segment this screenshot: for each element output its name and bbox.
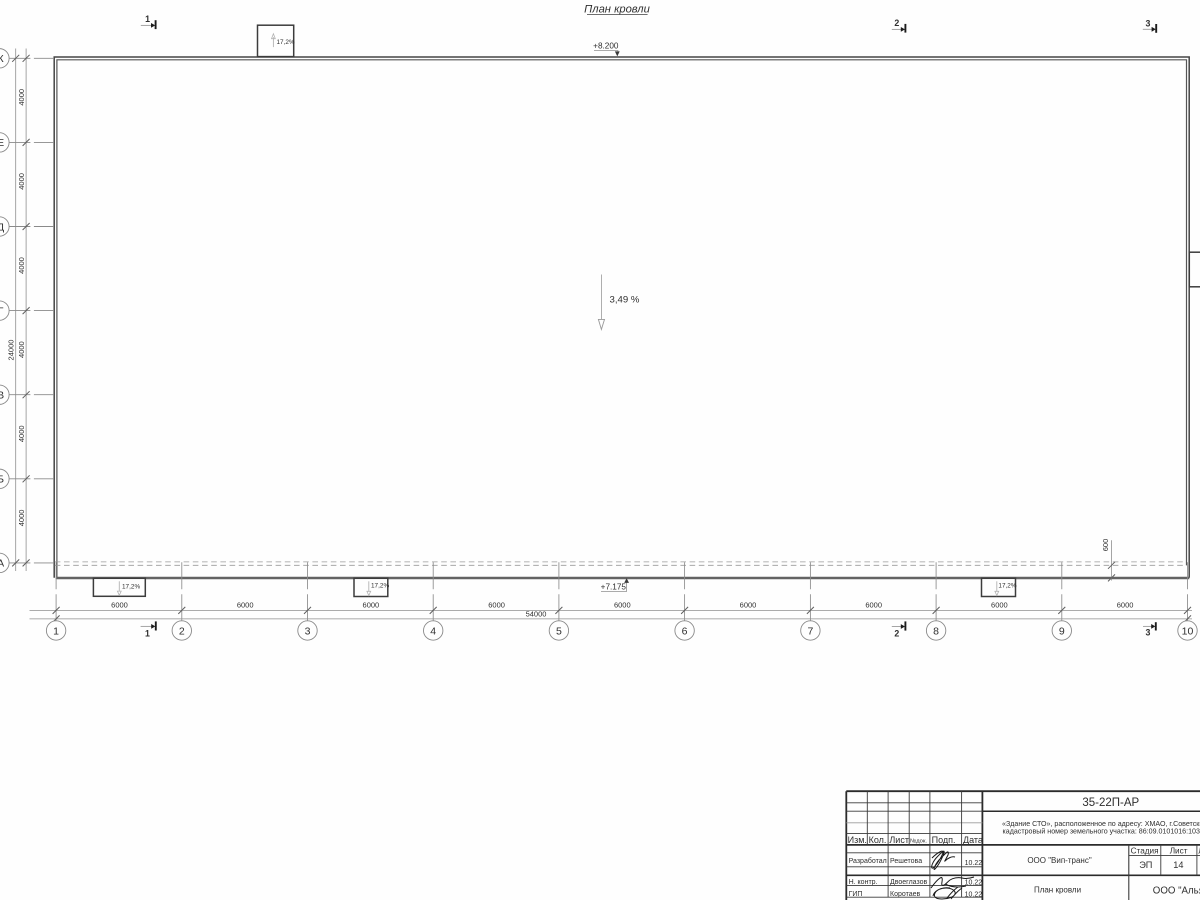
svg-text:4: 4 [430, 625, 436, 637]
svg-text:3,49 %: 3,49 % [610, 295, 640, 306]
svg-text:Решетова: Решетова [890, 858, 922, 865]
svg-text:6000: 6000 [363, 601, 380, 610]
svg-text:10: 10 [1182, 625, 1194, 637]
svg-text:3: 3 [1145, 628, 1150, 638]
svg-text:3: 3 [305, 625, 311, 637]
svg-text:кадастровый номер земельного у: кадастровый номер земельного участка: 86… [1003, 828, 1200, 836]
svg-text:«Здание СТО», расположенное по: «Здание СТО», расположенное по адресу: Х… [1002, 820, 1200, 828]
svg-text:А: А [0, 558, 4, 570]
svg-text:Н. контр.: Н. контр. [849, 879, 878, 886]
svg-text:6000: 6000 [865, 601, 882, 610]
svg-text:6000: 6000 [1117, 601, 1134, 610]
svg-text:Е: Е [0, 137, 4, 149]
svg-text:В: В [0, 390, 4, 402]
svg-text:+8.200: +8.200 [593, 42, 619, 51]
svg-text:14: 14 [1173, 860, 1183, 870]
svg-text:4000: 4000 [17, 173, 26, 190]
svg-text:4000: 4000 [17, 257, 26, 274]
svg-text:1: 1 [145, 628, 150, 638]
svg-text:10.22: 10.22 [965, 880, 983, 887]
svg-text:10.22: 10.22 [965, 891, 983, 898]
svg-text:Двоеглазов: Двоеглазов [890, 879, 927, 886]
svg-text:Дата: Дата [963, 835, 983, 845]
svg-text:17,2%: 17,2% [998, 583, 1016, 590]
svg-text:Изм.: Изм. [848, 835, 867, 845]
svg-text:4000: 4000 [17, 89, 26, 106]
svg-text:4000: 4000 [17, 425, 26, 442]
svg-text:1: 1 [145, 14, 150, 24]
svg-text:7: 7 [807, 625, 813, 637]
svg-text:8: 8 [933, 625, 939, 637]
svg-text:Кол.: Кол. [869, 835, 887, 845]
svg-text:2: 2 [179, 625, 185, 637]
svg-text:Разработал: Разработал [849, 857, 887, 865]
svg-text:17,2%: 17,2% [122, 584, 140, 591]
svg-text:35-22П-АР: 35-22П-АР [1082, 797, 1139, 809]
svg-text:План кровли: План кровли [1034, 885, 1081, 894]
svg-text:6000: 6000 [991, 601, 1008, 610]
svg-text:17,2%: 17,2% [371, 583, 389, 590]
svg-text:17,2%: 17,2% [277, 39, 295, 46]
svg-text:54000: 54000 [526, 609, 547, 618]
svg-text:Б: Б [0, 474, 4, 486]
svg-text:6: 6 [682, 625, 688, 637]
svg-text:ООО "Альянс": ООО "Альянс" [1153, 886, 1200, 897]
svg-text:3: 3 [1145, 18, 1150, 28]
svg-text:10.22: 10.22 [965, 860, 983, 867]
svg-text:Лист: Лист [889, 835, 909, 845]
svg-text:ЭП: ЭП [1139, 860, 1152, 870]
svg-text:Д: Д [0, 221, 4, 233]
svg-text:9: 9 [1059, 625, 1065, 637]
svg-text:6000: 6000 [740, 601, 757, 610]
svg-text:План кровли: План кровли [584, 3, 650, 15]
svg-text:6000: 6000 [111, 601, 128, 610]
svg-text:Лист: Лист [1170, 847, 1188, 856]
svg-text:6000: 6000 [488, 601, 505, 610]
svg-text:1: 1 [53, 625, 59, 637]
svg-text:600: 600 [1101, 539, 1110, 552]
svg-text:2: 2 [894, 18, 899, 28]
svg-text:№док.: №док. [910, 839, 927, 845]
svg-text:Подп.: Подп. [932, 835, 956, 845]
svg-text:2: 2 [894, 628, 899, 638]
svg-text:6000: 6000 [237, 601, 254, 610]
svg-text:4000: 4000 [17, 341, 26, 358]
svg-text:6000: 6000 [614, 601, 631, 610]
svg-text:+7.175: +7.175 [601, 583, 627, 592]
svg-text:24000: 24000 [7, 340, 16, 361]
svg-text:ООО "Вип-транс": ООО "Вип-транс" [1027, 856, 1092, 865]
svg-text:Коротаев: Коротаев [890, 891, 921, 898]
svg-text:Стадия: Стадия [1131, 847, 1159, 856]
svg-text:5: 5 [556, 625, 562, 637]
svg-text:Г: Г [0, 305, 4, 317]
svg-text:ГИП: ГИП [849, 891, 863, 898]
svg-text:4000: 4000 [17, 510, 26, 527]
